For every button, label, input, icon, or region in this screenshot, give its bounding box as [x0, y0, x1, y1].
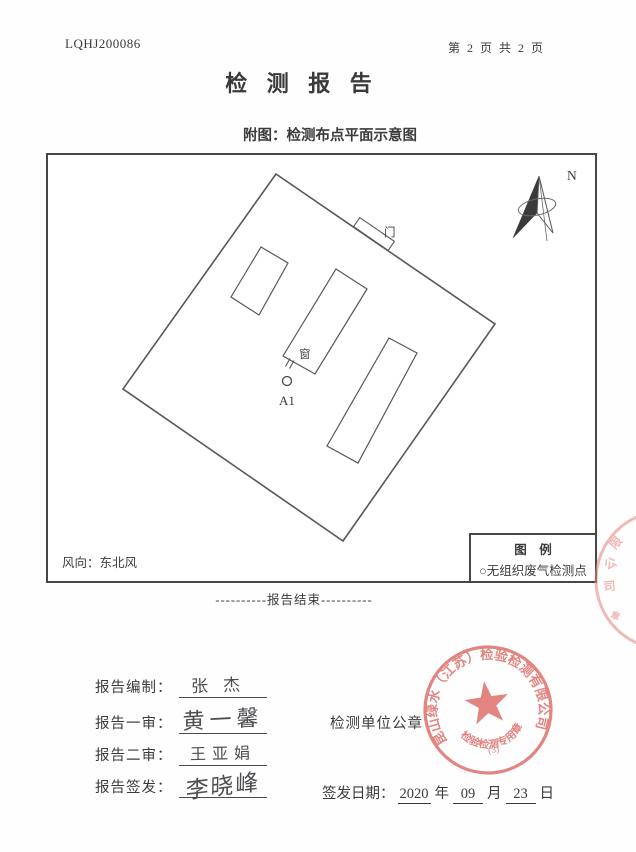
- signature-label: 报告一审：: [95, 712, 173, 734]
- issue-month: 09: [453, 786, 483, 804]
- legend-item-sample-point: ○无组织废气检测点: [471, 560, 595, 579]
- north-label: N: [567, 168, 577, 183]
- handwritten-signature: 王亚娟: [178, 739, 266, 765]
- signature-line: 李晓峰: [179, 775, 267, 798]
- handwritten-signature: 张杰: [178, 669, 267, 697]
- figure-subtitle: 附图：检测布点平面示意图: [12, 124, 636, 145]
- month-unit: 月: [487, 786, 502, 802]
- edge-seal-char: 司: [603, 579, 616, 594]
- edge-seal-char: 限: [606, 533, 625, 552]
- page-indicator: 第 2 页 共 2 页: [448, 39, 545, 56]
- north-compass-icon: [513, 176, 557, 241]
- signature-row-first-review: 报告一审： 黄一馨: [95, 712, 267, 734]
- page-title: 检 测 报 告: [0, 66, 620, 98]
- signature-line: 黄一馨: [179, 711, 267, 734]
- report-end-note: ----------报告结束----------: [0, 589, 612, 608]
- handwritten-signature: 黄一馨: [178, 700, 266, 737]
- signature-line: 张杰: [179, 675, 267, 698]
- window-tick-icon: [290, 361, 295, 369]
- issue-date-label: 签发日期：: [322, 786, 395, 802]
- signature-row-issuer: 报告签发： 李晓峰: [95, 776, 267, 798]
- sample-point-label: A1: [279, 393, 295, 408]
- building-2-outline: [283, 269, 367, 374]
- site-plan-drawing: 门 窗 A1 N 风向：东北风: [46, 153, 597, 583]
- signature-label: 报告编制：: [95, 676, 173, 698]
- document-number: LQHJ200086: [65, 36, 141, 52]
- issue-year: 2020: [398, 786, 431, 804]
- window-label: 窗: [299, 347, 311, 361]
- issue-day: 23: [506, 786, 536, 804]
- signature-label: 报告签发：: [95, 776, 173, 798]
- door-label: 门: [384, 225, 396, 239]
- seal-star-icon: [462, 678, 511, 725]
- building-3-outline: [327, 338, 417, 463]
- partial-edge-seal: 限 公 司 章: [585, 500, 636, 665]
- legend-title: 图 例: [471, 539, 595, 558]
- edge-seal-char: 章: [609, 609, 621, 623]
- signature-label: 报告二审：: [95, 744, 173, 766]
- year-unit: 年: [435, 786, 450, 802]
- handwritten-signature: 李晓峰: [179, 761, 267, 806]
- signature-row-second-review: 报告二审： 王亚娟: [95, 744, 267, 766]
- wind-direction-label: 风向：东北风: [62, 555, 138, 570]
- sample-point-marker: [283, 377, 292, 386]
- building-1-outline: [231, 247, 288, 315]
- edge-seal-char: 公: [602, 555, 619, 573]
- report-page: LQHJ200086 第 2 页 共 2 页 检 测 报 告 附图：检测布点平面…: [0, 0, 636, 852]
- legend-box: 图 例 ○无组织废气检测点: [469, 533, 597, 583]
- seal-caption: 检测单位公章: [330, 712, 423, 733]
- window-tick-icon: [286, 359, 291, 367]
- day-unit: 日: [540, 786, 555, 802]
- site-plan-frame: 门 窗 A1 N 风向：东北风: [46, 153, 597, 583]
- seal-number: (3): [487, 744, 500, 756]
- issue-date-row: 签发日期：2020年09月23日: [322, 782, 555, 804]
- company-seal: 昆山绿水（江苏）检验检测有限公司 检验检测专用章 (3): [419, 641, 557, 779]
- signature-row-compiler: 报告编制： 张杰: [95, 676, 267, 698]
